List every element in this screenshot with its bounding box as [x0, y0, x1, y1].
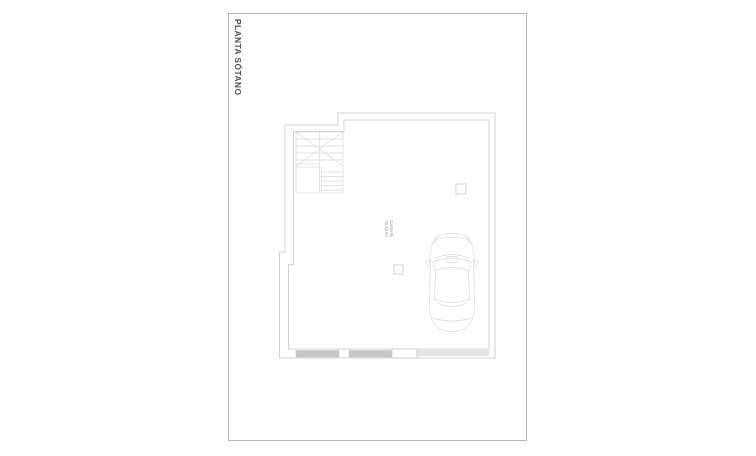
column-pillar	[394, 265, 403, 274]
bottom-wall-segments	[296, 349, 489, 358]
wall-segment	[296, 351, 339, 358]
page: PLANTA SÓTANO	[0, 0, 756, 456]
wall-segment	[349, 351, 392, 358]
room-area: 75.10 m²	[384, 220, 389, 237]
garage-door	[418, 351, 489, 356]
car-top-view	[426, 234, 478, 332]
door-opening	[392, 349, 417, 358]
staircase	[296, 132, 343, 193]
floor-plan	[0, 0, 756, 456]
room-name: GARAJE	[389, 220, 394, 237]
room-label: GARAJE 75.10 m²	[384, 220, 394, 237]
column-pillar	[456, 184, 466, 194]
